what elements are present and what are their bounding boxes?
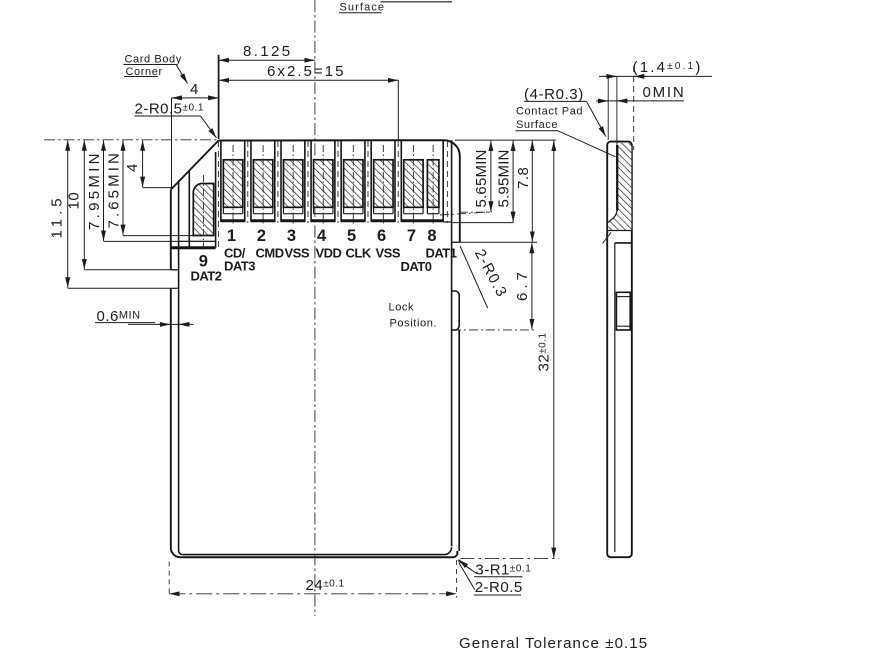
svg-text:(4-R0.3): (4-R0.3) (524, 86, 584, 103)
svg-text:Contact Pad: Contact Pad (516, 106, 583, 118)
svg-text:7.95MIN: 7.95MIN (86, 150, 103, 230)
svg-text:10: 10 (66, 192, 83, 210)
svg-text:Surface: Surface (516, 119, 558, 131)
svg-text:6x2.5=15: 6x2.5=15 (267, 63, 346, 80)
svg-text:Position.: Position. (390, 318, 438, 330)
svg-text:6: 6 (377, 227, 386, 245)
svg-text:VSS: VSS (376, 246, 401, 261)
svg-text:3-R1±0.1: 3-R1±0.1 (475, 562, 531, 579)
svg-text:4: 4 (317, 227, 327, 245)
svg-text:1: 1 (227, 227, 236, 245)
svg-text:CLK: CLK (346, 246, 372, 261)
svg-text:Lock: Lock (389, 302, 415, 314)
svg-text:7.8: 7.8 (515, 167, 532, 189)
svg-text:5.65MIN: 5.65MIN (473, 149, 490, 207)
svg-text:VSS: VSS (285, 246, 310, 261)
svg-text:Surface: Surface (340, 2, 386, 14)
svg-text:2-R0.5±0.1: 2-R0.5±0.1 (135, 101, 204, 118)
svg-text:32±0.1: 32±0.1 (536, 332, 553, 371)
svg-text:7: 7 (407, 227, 416, 245)
svg-text:(1.4±0.1): (1.4±0.1) (633, 59, 703, 76)
svg-text:5.95MIN: 5.95MIN (496, 149, 513, 207)
svg-text:VDD: VDD (316, 246, 342, 261)
svg-text:2-R0.5: 2-R0.5 (475, 579, 523, 596)
svg-text:3: 3 (287, 227, 296, 245)
svg-text:DAT3: DAT3 (224, 259, 255, 274)
svg-text:4: 4 (124, 163, 141, 172)
svg-text:0MIN: 0MIN (643, 84, 686, 101)
svg-text:General Tolerance ±0.15: General Tolerance ±0.15 (459, 635, 648, 652)
svg-text:2-R0.3: 2-R0.3 (471, 246, 511, 300)
svg-text:4: 4 (190, 81, 199, 98)
svg-text:8: 8 (427, 227, 436, 245)
svg-text:2: 2 (257, 227, 266, 245)
svg-text:11.5: 11.5 (49, 194, 66, 238)
svg-text:7.65MIN: 7.65MIN (106, 150, 123, 228)
svg-text:6.7: 6.7 (514, 268, 531, 301)
svg-text:8.125: 8.125 (243, 43, 293, 60)
svg-text:Card Body: Card Body (125, 54, 182, 66)
svg-text:5: 5 (347, 227, 356, 245)
svg-text:CMD: CMD (256, 246, 284, 261)
svg-text:DAT2: DAT2 (191, 269, 222, 284)
svg-text:24±0.1: 24±0.1 (306, 577, 345, 594)
svg-text:DAT0: DAT0 (401, 259, 432, 274)
